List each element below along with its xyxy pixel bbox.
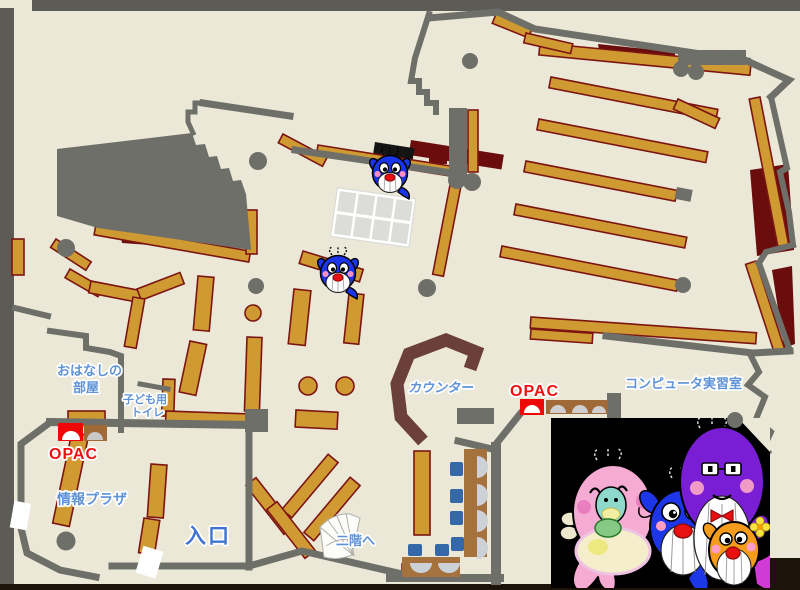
story-room-label: おはなしの bbox=[57, 363, 122, 378]
counter-label: カウンター bbox=[408, 380, 474, 395]
story-room-label-2: 部屋 bbox=[73, 380, 99, 395]
frame-left bbox=[0, 8, 14, 584]
frame-top bbox=[32, 0, 800, 11]
grid-table bbox=[331, 188, 416, 248]
opac-station-center bbox=[520, 399, 608, 415]
kids-toilet-label: 子ども用 bbox=[123, 393, 167, 406]
kids-toilet-label-2: トイレ bbox=[131, 406, 164, 419]
mascot-photo bbox=[551, 412, 791, 590]
opac-left-label: OPAC bbox=[49, 446, 98, 463]
opac-station-left bbox=[58, 423, 107, 441]
stairs-label: 二階へ bbox=[336, 533, 375, 548]
library-floor-map: おはなしの 部屋 子ども用 トイレ OPAC 情報プラザ 入口 二階へ カウンタ… bbox=[0, 0, 800, 590]
info-plaza-label: 情報プラザ bbox=[57, 491, 127, 507]
opac-center-label: OPAC bbox=[510, 383, 559, 400]
entrance-label: 入口 bbox=[185, 525, 231, 548]
frame-corner bbox=[768, 558, 800, 590]
counter-desk bbox=[457, 408, 494, 424]
computer-room-label: コンピュータ実習室 bbox=[625, 376, 742, 391]
